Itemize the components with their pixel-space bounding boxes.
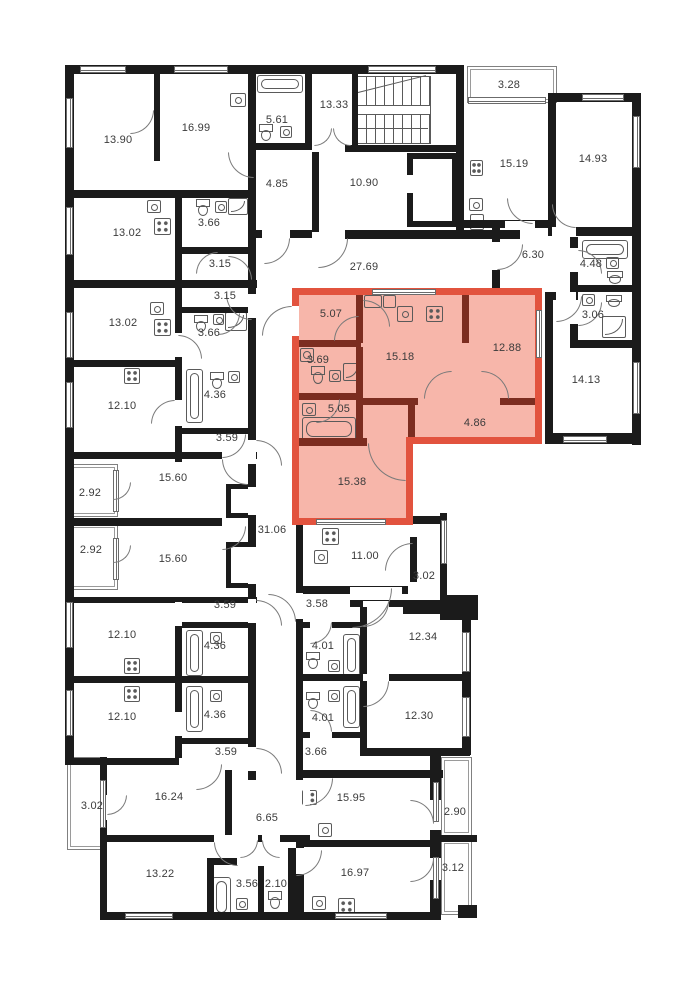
fixture-wc-icon xyxy=(196,199,210,216)
door-arc xyxy=(196,764,222,790)
room-area-label-highlighted: 5.07 xyxy=(320,308,342,320)
door-arc xyxy=(497,244,523,270)
room-area-label: 10.90 xyxy=(350,177,379,189)
room-area-label: 3.66 xyxy=(305,746,327,758)
door-arc xyxy=(222,459,248,485)
wall xyxy=(407,193,413,221)
door-opening xyxy=(552,227,576,236)
fixture-wc-icon xyxy=(210,372,224,389)
fixture-tub-icon xyxy=(186,369,203,423)
room-area-label: 15.95 xyxy=(337,792,366,804)
door-arc xyxy=(218,313,240,335)
wall xyxy=(248,288,256,780)
wall xyxy=(407,159,413,175)
door-arc xyxy=(228,152,254,178)
window xyxy=(633,362,640,414)
window xyxy=(125,913,173,919)
wall xyxy=(403,607,448,614)
fixture-stove-icon xyxy=(124,658,140,674)
room-area-label: 3.59 xyxy=(214,599,236,611)
wall xyxy=(65,280,257,288)
balcony-outline xyxy=(441,757,472,836)
door-opening xyxy=(363,674,389,681)
room-area-label: 14.93 xyxy=(579,153,608,165)
room-area-label: 3.02 xyxy=(81,800,103,812)
fixture-sink-icon xyxy=(210,690,222,702)
fixture-sink-icon xyxy=(314,550,328,564)
wall xyxy=(452,159,458,227)
door-arc xyxy=(268,594,296,622)
room-area-label: 2.92 xyxy=(80,544,102,556)
fixture-tub-icon xyxy=(257,75,303,93)
room-area-label: 4.48 xyxy=(580,258,602,270)
floor-plan: 13.9016.995.6113.333.2815.1914.934.8510.… xyxy=(0,0,700,990)
wall xyxy=(177,622,248,628)
stair-direction-line xyxy=(358,128,428,129)
room-area-label: 5.61 xyxy=(266,114,288,126)
wall xyxy=(256,143,312,150)
door-opening xyxy=(214,835,238,842)
window xyxy=(66,602,73,648)
window xyxy=(433,857,439,899)
window xyxy=(66,312,73,358)
door-opening xyxy=(248,487,256,515)
fixture-stove-icon xyxy=(426,306,443,322)
highlighted-apartment-border xyxy=(406,437,542,444)
room-area-label: 3.56 xyxy=(236,878,258,890)
fixture-sink-icon xyxy=(147,200,161,213)
room-area-label: 13.02 xyxy=(109,317,138,329)
window xyxy=(80,66,126,73)
door-arc xyxy=(256,748,282,774)
room-area-label-highlighted: 3.69 xyxy=(307,354,329,366)
door-arc xyxy=(262,840,280,858)
wall xyxy=(258,866,264,912)
wall xyxy=(360,748,470,756)
window xyxy=(174,66,228,73)
wall xyxy=(407,153,458,159)
window xyxy=(316,519,386,525)
door-arc xyxy=(130,110,154,134)
wall xyxy=(207,862,214,912)
fixture-wc-icon xyxy=(268,891,282,909)
fixture-sink-icon xyxy=(328,660,340,672)
stair-rail-line xyxy=(430,76,431,144)
door-opening xyxy=(248,440,256,464)
wall xyxy=(578,285,640,292)
room-area-label: 3.12 xyxy=(442,862,464,874)
window xyxy=(633,116,640,168)
window xyxy=(536,310,542,358)
window xyxy=(462,697,470,737)
fixture-stove-icon xyxy=(124,686,140,702)
fixture-stove-icon xyxy=(154,319,171,336)
room-area-label: 11.00 xyxy=(351,550,379,562)
room-area-label: 12.34 xyxy=(409,631,438,643)
room-area-label: 16.97 xyxy=(341,867,370,879)
highlighted-apartment-inner-wall xyxy=(462,295,469,343)
highlighted-apartment-inner-wall xyxy=(408,398,415,440)
room-area-label: 4.01 xyxy=(312,640,334,652)
room-area-label: 15.60 xyxy=(159,553,188,565)
door-opening xyxy=(175,400,182,426)
wall xyxy=(352,73,358,145)
fixture-tub-icon xyxy=(343,634,360,676)
door-arc xyxy=(240,840,258,858)
wall xyxy=(312,152,319,232)
fixture-wc-icon xyxy=(606,295,622,307)
fixture-sink-icon xyxy=(236,898,248,910)
fixture-wc-icon xyxy=(306,692,320,709)
fixture-wc-icon xyxy=(311,366,325,384)
wall xyxy=(296,525,303,780)
room-area-label: 2.92 xyxy=(79,487,101,499)
fixture-sink-icon xyxy=(469,198,483,211)
fixture-sink-icon xyxy=(606,257,619,269)
fixture-stove-icon xyxy=(154,218,171,235)
fixture-stove-icon xyxy=(322,528,339,545)
door-arc xyxy=(305,778,333,806)
door-opening xyxy=(175,602,182,626)
room-area-label: 13.90 xyxy=(104,134,133,146)
fixture-sink-icon xyxy=(302,403,316,416)
fixture-tub-icon xyxy=(186,686,203,732)
room-area-label: 15.60 xyxy=(159,472,188,484)
room-area-label: 4.01 xyxy=(312,712,334,724)
room-area-label: 13.02 xyxy=(113,227,142,239)
door-opening xyxy=(310,732,332,738)
fixture-box-icon xyxy=(383,295,396,308)
wall xyxy=(345,145,464,152)
wall xyxy=(303,840,440,847)
wall xyxy=(407,221,452,227)
room-area-label: 27.69 xyxy=(350,261,379,273)
fixture-sink-icon xyxy=(329,370,341,382)
window xyxy=(66,690,73,736)
door-arc xyxy=(262,306,292,336)
door-arc xyxy=(363,681,389,707)
door-arc xyxy=(314,128,332,146)
fixture-sink-icon xyxy=(312,896,326,910)
door-opening xyxy=(292,306,299,336)
wall xyxy=(65,518,243,526)
fixture-wc-icon xyxy=(259,124,273,141)
room-area-label: 12.10 xyxy=(108,629,137,641)
window xyxy=(433,782,439,822)
window xyxy=(462,632,470,672)
door-opening xyxy=(175,712,182,736)
door-opening xyxy=(248,599,256,623)
highlighted-apartment-inner-wall xyxy=(356,347,363,444)
door-opening xyxy=(222,518,243,526)
room-area-label: 3.59 xyxy=(215,746,237,758)
door-arc xyxy=(385,543,413,571)
balcony-outline xyxy=(441,840,472,915)
door-arc xyxy=(333,128,351,146)
window xyxy=(66,207,73,255)
window xyxy=(468,97,546,104)
wall xyxy=(288,848,296,912)
window xyxy=(563,436,607,443)
door-arc xyxy=(151,400,175,424)
room-area-label: 3.15 xyxy=(214,290,236,302)
door-arc xyxy=(352,588,392,628)
window xyxy=(441,520,447,564)
wall xyxy=(545,292,553,433)
room-area-label: 3.66 xyxy=(198,217,220,229)
wall xyxy=(154,73,160,161)
door-arc xyxy=(113,482,131,500)
room-area-label: 13.33 xyxy=(320,99,349,111)
room-area-label-highlighted: 15.38 xyxy=(338,476,367,488)
door-arc xyxy=(113,545,131,563)
window xyxy=(66,98,73,148)
room-area-label: 3.28 xyxy=(498,79,520,91)
door-arc xyxy=(296,850,322,876)
door-opening xyxy=(262,230,290,238)
fixture-shower-icon xyxy=(228,198,248,215)
fixture-stove-icon xyxy=(470,160,483,176)
window xyxy=(66,382,73,428)
wall xyxy=(578,340,640,348)
wall xyxy=(175,197,182,287)
fixture-tub-icon xyxy=(186,630,203,676)
fixture-sink-icon xyxy=(280,126,292,138)
highlighted-apartment-border xyxy=(406,437,413,525)
stair-flight xyxy=(356,76,430,106)
wall xyxy=(225,770,232,840)
room-area-label: 3.66 xyxy=(198,327,220,339)
fixture-sink-icon xyxy=(150,302,164,315)
wall xyxy=(65,360,179,367)
room-area-label: 3.02 xyxy=(413,570,435,582)
room-area-label: 12.30 xyxy=(405,710,434,722)
door-opening xyxy=(248,747,256,771)
stair-flight xyxy=(356,114,430,144)
wall xyxy=(458,905,477,918)
room-area-label: 2.90 xyxy=(444,806,466,818)
room-area-label-highlighted: 5.05 xyxy=(328,403,350,415)
fixture-tub-icon xyxy=(212,877,231,917)
highlighted-apartment-inner-wall xyxy=(299,340,361,347)
wall xyxy=(65,676,250,683)
room-area-label-highlighted: 4.86 xyxy=(464,417,486,429)
wall xyxy=(177,738,248,744)
fixture-wc-icon xyxy=(306,652,320,669)
door-opening xyxy=(248,547,256,584)
fixture-sink-icon xyxy=(328,690,340,702)
room-area-label: 16.24 xyxy=(155,791,184,803)
fixture-sink-icon xyxy=(230,93,246,107)
door-arc xyxy=(264,238,290,264)
door-opening xyxy=(570,248,578,272)
room-area-label: 3.58 xyxy=(306,598,328,610)
room-area-label: 4.36 xyxy=(204,389,226,401)
room-area-label: 6.30 xyxy=(522,249,544,261)
fixture-shower-icon xyxy=(602,316,626,338)
room-area-label: 2.10 xyxy=(265,878,287,890)
room-area-label: 13.22 xyxy=(146,868,175,880)
door-arc xyxy=(107,795,127,815)
highlighted-apartment-inner-wall xyxy=(500,398,536,405)
balcony-outline xyxy=(67,524,118,590)
door-opening xyxy=(296,593,303,619)
window xyxy=(368,66,436,73)
room-area-label: 4.85 xyxy=(266,178,288,190)
door-arc xyxy=(318,238,348,268)
room-area-label: 4.36 xyxy=(204,709,226,721)
fixture-sink-icon xyxy=(397,306,413,322)
wall xyxy=(65,190,250,198)
window xyxy=(335,913,387,919)
fixture-wc-icon xyxy=(607,271,623,284)
wall xyxy=(303,770,443,778)
room-area-label: 12.10 xyxy=(108,400,137,412)
room-area-label: 6.65 xyxy=(256,812,278,824)
highlighted-apartment-inner-wall xyxy=(299,438,367,446)
room-area-label: 3.15 xyxy=(209,258,231,270)
room-area-label: 16.99 xyxy=(182,122,211,134)
room-area-label: 4.36 xyxy=(204,640,226,652)
room-area-label: 14.13 xyxy=(572,374,601,386)
room-area-label: 31.06 xyxy=(258,524,287,536)
wall xyxy=(65,758,179,765)
fixture-tub-icon xyxy=(343,686,360,728)
fixture-stove-icon xyxy=(124,368,140,384)
fixture-sink-icon xyxy=(215,201,227,213)
room-area-label: 15.19 xyxy=(500,158,529,170)
wall xyxy=(305,73,312,147)
wall xyxy=(248,73,256,288)
fixture-sink-icon xyxy=(228,371,240,383)
room-area-label: 3.59 xyxy=(216,432,238,444)
window xyxy=(372,289,436,295)
window xyxy=(582,94,624,101)
fixture-sink-icon xyxy=(318,823,332,837)
room-area-label-highlighted: 15.18 xyxy=(386,351,415,363)
room-area-label: 12.10 xyxy=(108,711,137,723)
room-area-label: 3.06 xyxy=(582,309,604,321)
door-arc xyxy=(256,440,282,466)
room-area-label-highlighted: 12.88 xyxy=(493,342,522,354)
